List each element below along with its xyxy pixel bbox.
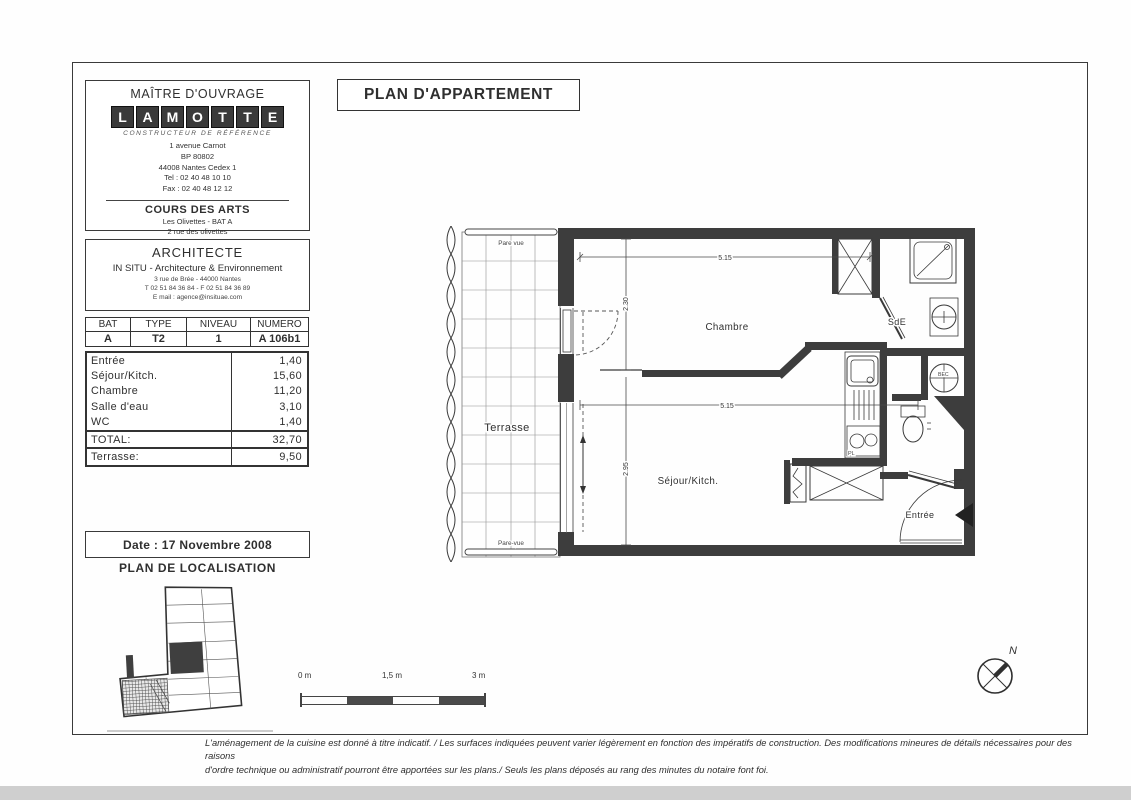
divider: [106, 200, 289, 201]
value-niveau: 1: [187, 332, 251, 346]
room-area: 1,40: [231, 415, 307, 430]
disclaimer-line-2: d'ordre technique ou administratif pourr…: [205, 764, 1100, 777]
room-area: 3,10: [231, 399, 307, 414]
value-type: T2: [131, 332, 187, 346]
architecte-name: IN SITU - Architecture & Environnement: [86, 263, 309, 274]
unit-table-header-row: BAT TYPE NIVEAU NUMERO: [86, 318, 308, 332]
table-row: Entrée 1,40: [87, 353, 307, 368]
north-compass-icon: N: [965, 640, 1029, 704]
architecte-line: E mail : agence@insituae.com: [86, 294, 309, 303]
pare-vue-screen-bottom: [465, 549, 557, 555]
page-title: PLAN D'APPARTEMENT: [337, 79, 580, 111]
chambre-label: Chambre: [705, 322, 748, 333]
footer-disclaimer: L'aménagement de la cuisine est donné à …: [205, 737, 1100, 777]
unit-info-table: BAT TYPE NIVEAU NUMERO A T2 1 A 106b1: [85, 317, 309, 347]
room-label: WC: [87, 416, 231, 428]
terrace-door: [561, 308, 619, 355]
address-line: 44008 Nantes Cedex 1: [86, 163, 309, 174]
walls: [558, 228, 975, 556]
washbasin: [930, 298, 958, 336]
address-line: Tel : 02 40 48 10 10: [86, 173, 309, 184]
logo-letter-tile: E: [261, 106, 284, 128]
total-row: TOTAL: 32,70: [87, 430, 307, 447]
unit-table-value-row: A T2 1 A 106b1: [86, 332, 308, 346]
logo-letter-tile: T: [236, 106, 259, 128]
col-header-type: TYPE: [131, 318, 187, 331]
address-line: BP 80802: [86, 152, 309, 163]
logo-letter-tile: A: [136, 106, 159, 128]
value-numero: A 106b1: [251, 332, 308, 346]
dim-sejour-depth: 2.95: [623, 462, 630, 476]
total-label: TOTAL:: [87, 434, 231, 446]
logo-letter-tile: L: [111, 106, 134, 128]
terrasse-label: Terrasse: [484, 422, 529, 434]
sde-label: SdE: [888, 317, 906, 327]
table-row: WC 1,40: [87, 415, 307, 430]
terrasse-tiling: Pare vue Pare-vue Terrasse: [462, 229, 560, 557]
entrance-door: [900, 471, 962, 543]
dimension-lines: 5.15 5.15 2.30 2.95: [577, 239, 918, 545]
terrasse-value: 9,50: [231, 449, 307, 464]
water-heater: BEC: [930, 364, 958, 392]
room-area: 15,60: [231, 368, 307, 383]
maitre-address: 1 avenue Carnot BP 80802 44008 Nantes Ce…: [86, 141, 309, 195]
localisation-title: PLAN DE LOCALISATION: [85, 561, 310, 575]
room-area: 1,40: [231, 353, 307, 368]
table-row: Chambre 11,20: [87, 384, 307, 399]
hedge-symbol: [447, 226, 455, 562]
dim-middle: 5.15: [720, 403, 734, 410]
sejour-window: [561, 403, 587, 533]
toilet: [901, 406, 932, 442]
table-row: Salle d'eau 3,10: [87, 399, 307, 414]
room-label: Séjour/Kitch.: [87, 370, 231, 382]
architecte-block: ARCHITECTE IN SITU - Architecture & Envi…: [85, 239, 310, 311]
room-label: Salle d'eau: [87, 401, 231, 413]
north-label: N: [1009, 645, 1017, 657]
project-line: Les Olivettes - BAT A: [86, 217, 309, 227]
col-header-niveau: NIVEAU: [187, 318, 251, 331]
logo-letter-tile: O: [186, 106, 209, 128]
sejour-label: Séjour/Kitch.: [658, 476, 719, 487]
table-row: Séjour/Kitch. 15,60: [87, 368, 307, 383]
storage-closet: [790, 464, 883, 502]
closet: [838, 239, 872, 294]
surface-areas-table: Entrée 1,40 Séjour/Kitch. 15,60 Chambre …: [85, 351, 309, 467]
address-line: Fax : 02 40 48 12 12: [86, 184, 309, 195]
dim-chambre-depth: 2.30: [623, 297, 630, 311]
room-label: Entrée: [87, 355, 231, 367]
terrasse-label: Terrasse:: [87, 451, 231, 463]
col-header-bat: BAT: [86, 318, 131, 331]
scale-1-5: 1,5 m: [382, 671, 402, 680]
project-name: COURS DES ARTS: [86, 204, 309, 216]
architecte-line: 3 rue de Brée - 44000 Nantes: [86, 276, 309, 285]
maitre-title: MAÎTRE D'OUVRAGE: [86, 87, 309, 101]
document-page: MAÎTRE D'OUVRAGE L A M O T T E CONSTRUCT…: [0, 0, 1131, 800]
room-area: 11,20: [231, 384, 307, 399]
lamotte-logo: L A M O T T E: [86, 106, 309, 128]
placard-pl-label: PL: [848, 451, 855, 457]
room-label: Chambre: [87, 385, 231, 397]
scale-bar: 0 m 1,5 m 3 m: [300, 671, 486, 711]
disclaimer-line-1: L'aménagement de la cuisine est donné à …: [205, 737, 1100, 764]
logo-tagline: CONSTRUCTEUR DE RÉFÉRENCE: [86, 130, 309, 137]
architecte-title: ARCHITECTE: [86, 245, 309, 260]
site-location-plan: [105, 582, 275, 737]
address-line: 1 avenue Carnot: [86, 141, 309, 152]
shower-tray: [910, 238, 956, 283]
scale-bar-graphic: [300, 696, 486, 705]
logo-letter-tile: M: [161, 106, 184, 128]
project-line: 2 rue des olivettes: [86, 227, 309, 237]
highlighted-unit: [169, 641, 204, 674]
pare-vue-screen-top: [465, 229, 557, 235]
entree-label: Entrée: [906, 510, 935, 520]
dim-top: 5.15: [718, 255, 732, 262]
pare-vue-bottom-label: Pare-vue: [498, 540, 524, 547]
scan-edge: [0, 786, 1131, 800]
value-bat: A: [86, 332, 131, 346]
scale-3: 3 m: [472, 671, 485, 680]
apartment-floor-plan: Pare vue Pare-vue Terrasse: [440, 226, 985, 562]
maitre-ouvrage-block: MAÎTRE D'OUVRAGE L A M O T T E CONSTRUCT…: [85, 80, 310, 231]
col-header-numero: NUMERO: [251, 318, 308, 331]
total-value: 32,70: [231, 432, 307, 447]
terrasse-row: Terrasse: 9,50: [87, 447, 307, 464]
logo-letter-tile: T: [211, 106, 234, 128]
bec-label: BEC: [938, 372, 949, 378]
scale-0: 0 m: [298, 671, 311, 680]
pare-vue-top-label: Pare vue: [498, 240, 524, 247]
architecte-contact: 3 rue de Brée - 44000 Nantes T 02 51 84 …: [86, 276, 309, 303]
architecte-line: T 02 51 84 36 84 - F 02 51 84 36 89: [86, 285, 309, 294]
date-box: Date : 17 Novembre 2008: [85, 531, 310, 558]
